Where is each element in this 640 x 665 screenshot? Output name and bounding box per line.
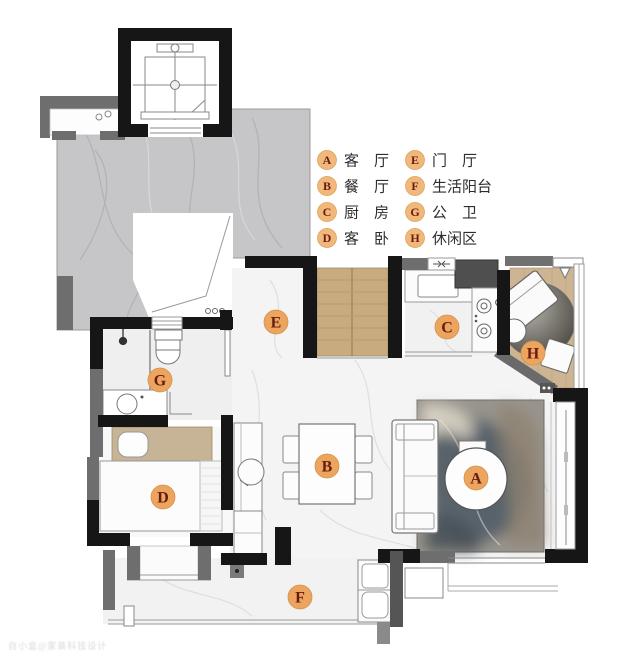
svg-text:B: B xyxy=(322,459,333,476)
svg-text:客 厅: 客 厅 xyxy=(344,152,389,169)
washing-machine xyxy=(362,592,388,618)
legend-row-B: B 餐 厅 xyxy=(318,177,390,196)
svg-text:生活阳台: 生活阳台 xyxy=(432,178,492,195)
dining-chair xyxy=(283,436,300,463)
blanket xyxy=(200,461,222,531)
watermark: 自小盒@家装科技设计 xyxy=(8,640,107,651)
lobby-wall-left xyxy=(40,96,50,138)
room-marker-E: E xyxy=(264,310,288,334)
svg-text:客 卧: 客 卧 xyxy=(344,230,389,247)
dining-chair xyxy=(355,436,372,463)
room-marker-A: A xyxy=(464,466,488,490)
svg-text:厨 房: 厨 房 xyxy=(344,204,389,221)
bed xyxy=(100,461,200,531)
room-marker-F: F xyxy=(288,585,312,609)
legend-row-H: H 休闲区 xyxy=(406,229,478,248)
railing-post xyxy=(124,606,134,626)
lobby-wall-top xyxy=(40,96,125,109)
svg-text:D: D xyxy=(157,490,169,507)
legend-row-A: A 客 厅 xyxy=(318,151,390,170)
room-marker-D: D xyxy=(151,485,175,509)
svg-text:E: E xyxy=(411,153,419,167)
svg-text:C: C xyxy=(323,205,332,219)
entry-wardrobe xyxy=(317,268,388,358)
svg-text:C: C xyxy=(441,320,453,337)
lobby-nook xyxy=(40,96,125,140)
room-marker-G: G xyxy=(148,368,172,392)
svg-text:门 厅: 门 厅 xyxy=(432,152,477,169)
laundry-sink xyxy=(362,564,388,588)
svg-text:F: F xyxy=(295,590,305,607)
sofa xyxy=(392,420,438,533)
fridge xyxy=(455,260,498,288)
dining-chair xyxy=(355,472,372,499)
legend-row-D: D 客 卧 xyxy=(318,229,390,248)
room-marker-H: H xyxy=(521,341,545,365)
pillow xyxy=(118,432,148,457)
basin xyxy=(117,394,137,414)
legend-row-G: G 公 卫 xyxy=(406,203,478,222)
high-window xyxy=(152,317,182,329)
svg-text:B: B xyxy=(323,179,331,193)
svg-text:D: D xyxy=(323,231,332,245)
entry-door-recess xyxy=(133,213,233,320)
dining-chair xyxy=(283,472,300,499)
fixture-dot xyxy=(105,111,111,117)
legend-row-C: C 厨 房 xyxy=(318,203,390,222)
svg-text:H: H xyxy=(527,346,540,363)
ac-platform xyxy=(405,568,443,598)
legend: A 客 厅 B 餐 厅 C 厨 房 D 客 卧 E 门 厅 F 生活阳台 xyxy=(318,151,493,248)
svg-text:A: A xyxy=(470,471,482,488)
svg-text:H: H xyxy=(410,231,420,245)
room-marker-C: C xyxy=(435,315,459,339)
fixture-dot xyxy=(96,114,102,120)
bathroom-door-leaf xyxy=(225,330,230,376)
doorbell-dot xyxy=(213,309,218,314)
elevator xyxy=(118,28,232,137)
doorbell-dot xyxy=(206,309,211,314)
svg-text:E: E xyxy=(271,315,282,332)
toilet xyxy=(155,330,182,364)
svg-text:G: G xyxy=(410,205,419,219)
svg-text:休闲区: 休闲区 xyxy=(432,230,477,247)
legend-row-F: F 生活阳台 xyxy=(406,177,493,196)
svg-text:F: F xyxy=(411,179,418,193)
svg-text:餐 厅: 餐 厅 xyxy=(344,178,389,195)
kitchen-sink xyxy=(418,275,458,297)
desk-nook xyxy=(234,423,264,555)
svg-text:A: A xyxy=(323,153,332,167)
legend-row-E: E 门 厅 xyxy=(406,151,478,170)
floor-plan-drawing: A B C D E F G H xyxy=(0,0,640,665)
svg-text:G: G xyxy=(154,373,167,390)
svg-text:公 卫: 公 卫 xyxy=(432,205,477,221)
floor-plan: A B C D E F G H xyxy=(0,0,640,665)
room-marker-B: B xyxy=(315,454,339,478)
